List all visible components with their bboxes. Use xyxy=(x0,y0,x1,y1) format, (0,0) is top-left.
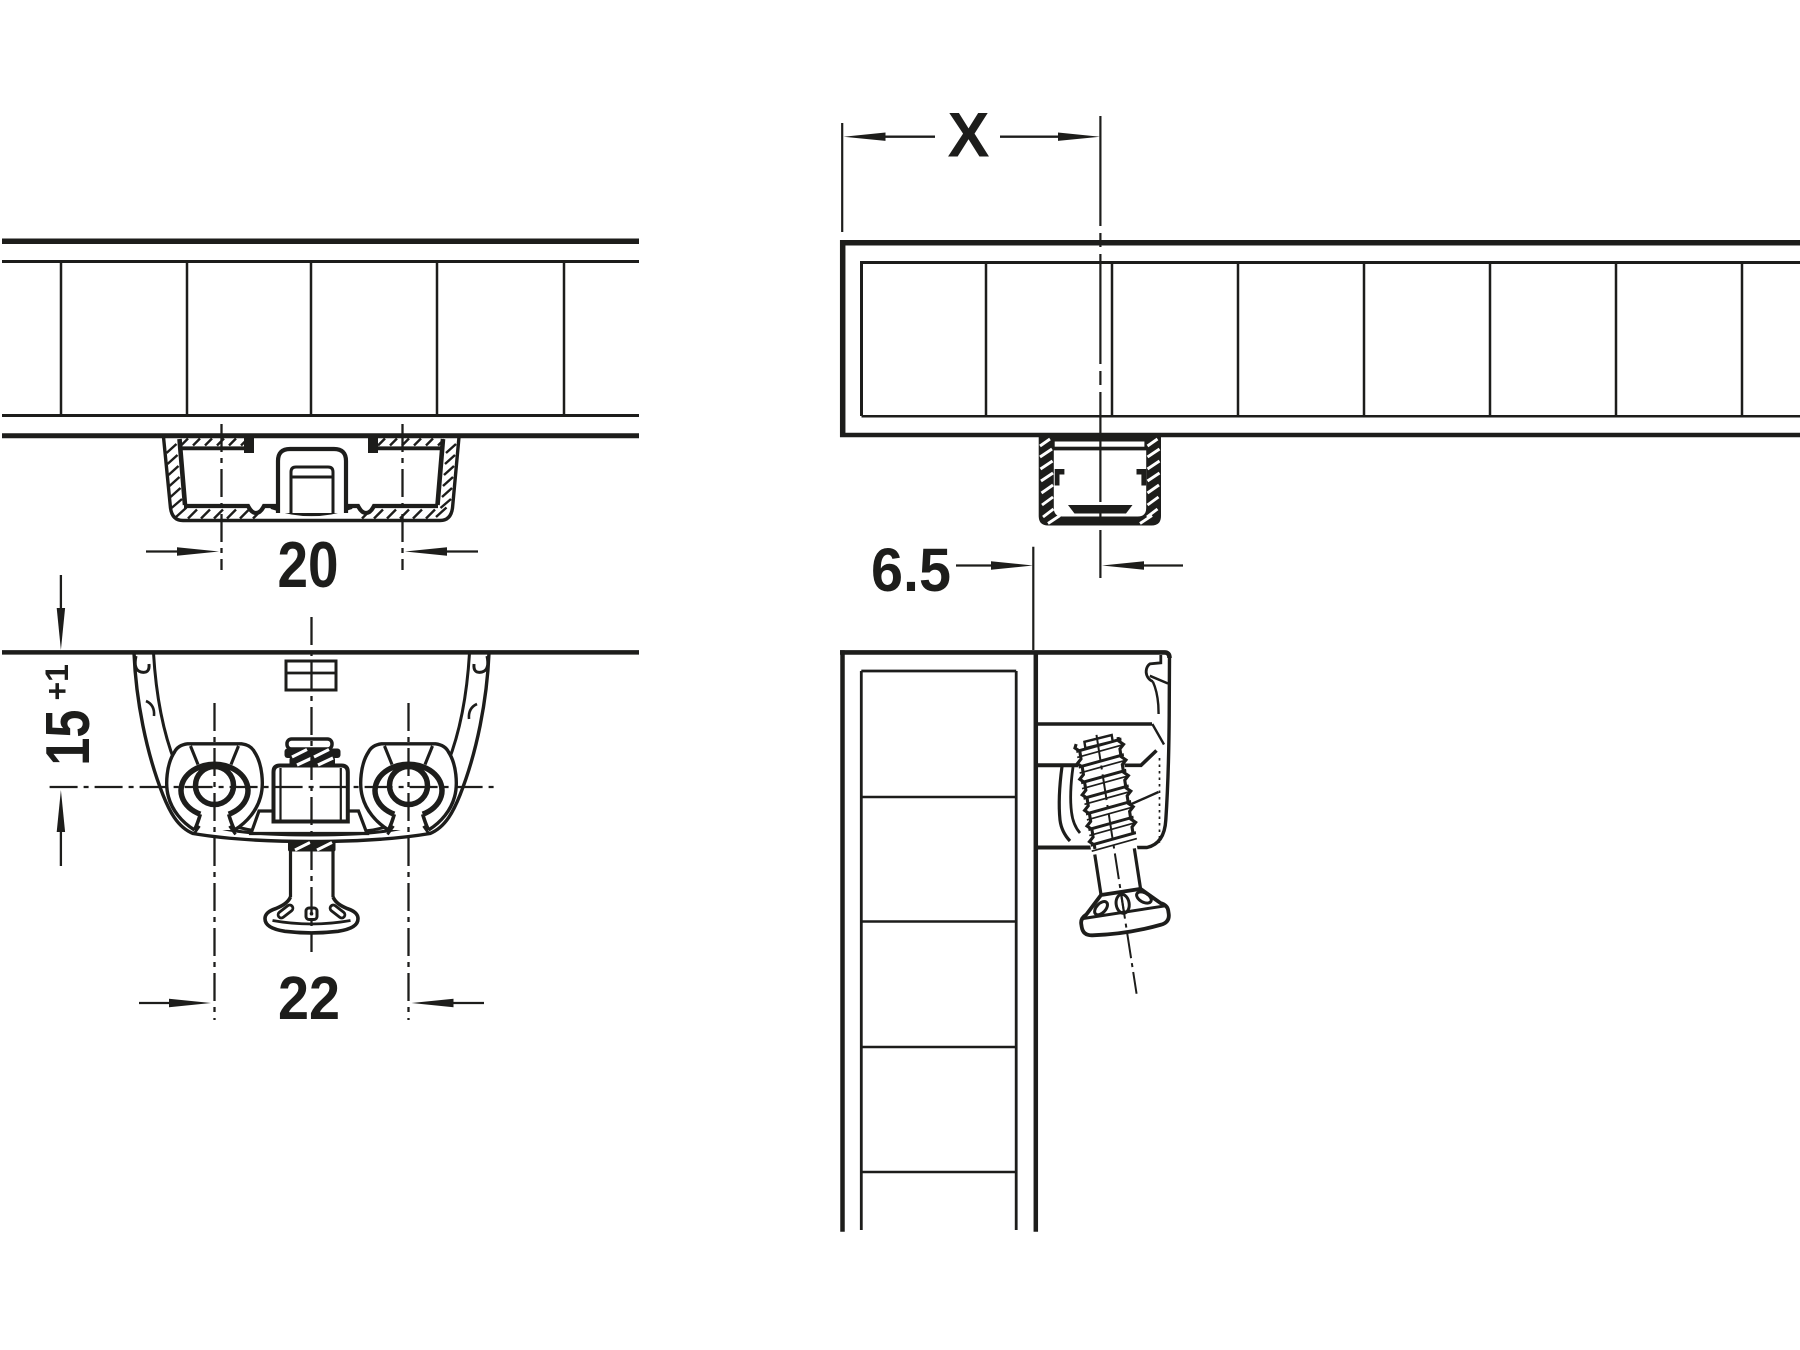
svg-text:15: 15 xyxy=(34,710,103,766)
svg-text:6.5: 6.5 xyxy=(871,536,951,604)
svg-text:20: 20 xyxy=(278,528,339,601)
svg-text:+1: +1 xyxy=(39,664,75,700)
svg-text:22: 22 xyxy=(278,964,340,1032)
svg-text:X: X xyxy=(947,101,989,171)
